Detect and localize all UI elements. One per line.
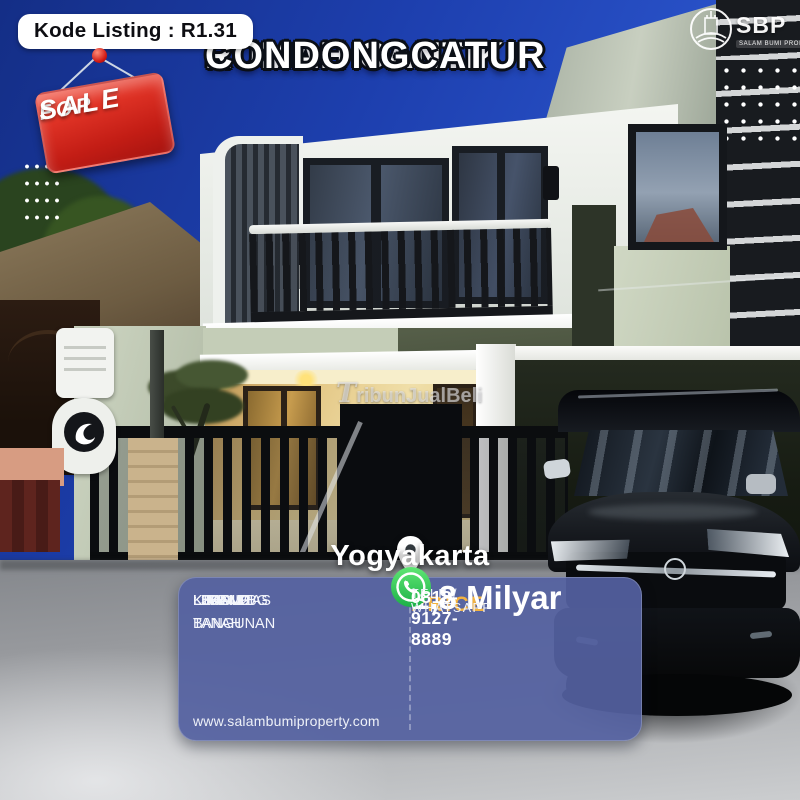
wall-lamp [543,166,559,200]
car-mirror [543,458,571,479]
agency-logo: SBP SALAM BUMI PROPERTY [688,4,798,60]
website-url: www.salambumiproperty.com [193,713,380,729]
watermark: TribunJualBeli [336,378,516,409]
price-section: PRICE 1,8 Milyar TELP / WHATSAPP 0813-91… [411,578,643,740]
neighbor-garage-door [0,480,60,552]
for-sale-line2: SALE [36,82,124,127]
agency-logo-icon [688,6,734,52]
ground-wall-right [614,246,730,358]
tag-pin [92,48,107,63]
agency-logo-text: SBP [736,12,786,39]
wall-recess [572,205,616,357]
car-emblem [664,558,686,580]
agency-logo-subtext: SALAM BUMI PROPERTY [736,40,800,48]
listing-flyer: Kode Listing : R1.31 FOR SALE RUMAH CANT… [0,0,800,800]
brick-column [128,438,178,580]
car-mirror [746,474,776,494]
contact-phone: 0813-9127-8889 [411,587,458,650]
details-panel: LUAS TANAH : 138 M2 LUAS BANGUNAN : 188 … [178,577,642,741]
title-line2: CONDONGCATUR [205,36,546,78]
square-dots-pattern [718,62,798,142]
for-sale-board: FOR SALE [34,71,176,174]
window-roof-reflection [644,208,714,242]
listing-code-badge: Kode Listing : R1.31 [18,14,253,49]
side-window [628,124,727,250]
sign-board-top [56,328,114,398]
balcony-slats [249,228,553,312]
for-sale-tag: FOR SALE [30,46,190,172]
